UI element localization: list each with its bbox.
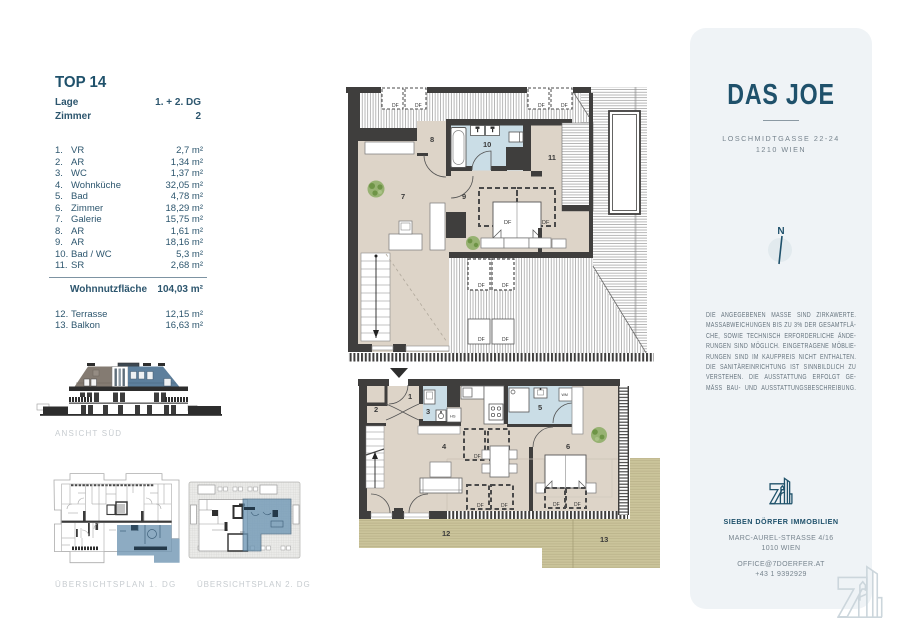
svg-text:DF: DF — [502, 283, 509, 289]
svg-text:9: 9 — [462, 192, 466, 201]
svg-text:HS: HS — [450, 414, 456, 419]
svg-text:11: 11 — [548, 153, 556, 162]
svg-text:7: 7 — [401, 192, 405, 201]
svg-text:DF: DF — [478, 283, 485, 289]
svg-text:DF: DF — [538, 103, 545, 109]
svg-text:DF: DF — [474, 454, 481, 460]
svg-text:2: 2 — [374, 405, 378, 414]
svg-text:DF: DF — [502, 337, 509, 343]
svg-text:3: 3 — [426, 407, 430, 416]
svg-text:12: 12 — [442, 529, 450, 538]
svg-text:10: 10 — [483, 140, 491, 149]
svg-text:DF: DF — [542, 220, 550, 226]
svg-text:5: 5 — [538, 403, 542, 412]
svg-text:DF: DF — [561, 103, 568, 109]
svg-text:DF: DF — [392, 103, 399, 109]
svg-text:6: 6 — [566, 442, 570, 451]
svg-text:1: 1 — [408, 392, 412, 401]
svg-text:8: 8 — [430, 135, 434, 144]
svg-text:DF: DF — [574, 502, 581, 508]
svg-text:WM: WM — [562, 393, 568, 397]
svg-text:DF: DF — [553, 502, 560, 508]
svg-text:DF: DF — [504, 220, 512, 226]
svg-text:DF: DF — [415, 103, 422, 109]
svg-text:DF: DF — [478, 337, 485, 343]
svg-text:N: N — [777, 226, 784, 237]
svg-text:13: 13 — [600, 535, 608, 544]
svg-text:DF: DF — [501, 503, 508, 509]
svg-text:DF: DF — [477, 503, 484, 509]
